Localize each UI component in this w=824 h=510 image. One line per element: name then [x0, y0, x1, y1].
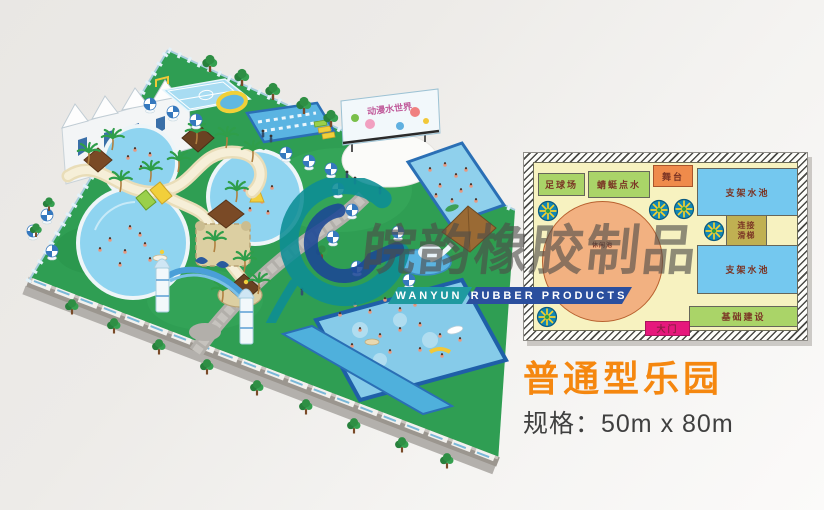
umbrella-icon: [46, 245, 58, 260]
plan-zone-label: 滑梯: [738, 231, 756, 240]
plan-zone-label: 连接: [738, 221, 756, 230]
umbrella-icon: [144, 98, 156, 113]
umbrella-icon: [167, 106, 179, 121]
plan-zone-frame-pool-top: 支架水池: [697, 168, 798, 216]
plan-tree-icon: [537, 200, 559, 222]
plan-zone-football: 足球场: [538, 173, 585, 196]
site-plan-panel: 休闲池 足球场 蜻蜓点水 舞台 支架水池 连接 滑梯 支架水池 基础建设 大门: [523, 152, 808, 341]
product-title: 普通型乐园: [523, 350, 723, 402]
plan-zone-label: 休闲池: [592, 240, 613, 249]
umbrella-icon: [392, 226, 404, 241]
tree-icon: [43, 197, 55, 211]
product-spec: 规格：50m x 80m: [523, 404, 734, 440]
plan-zone-infrastructure: 基础建设: [689, 306, 798, 327]
product-sheet: 动漫水世界: [0, 0, 824, 510]
umbrella-icon: [325, 163, 337, 178]
umbrella-icon: [41, 209, 53, 224]
plan-zone-connecting-slide: 连接 滑梯: [726, 215, 767, 246]
boat: [365, 339, 379, 345]
plan-zone-gate: 大门: [645, 321, 690, 336]
umbrella-icon: [190, 114, 202, 129]
plan-tree-icon: [648, 199, 670, 221]
plan-zone-dragonfly: 蜻蜓点水: [588, 171, 650, 198]
plan-tree-icon: [536, 306, 558, 328]
plan-tree-icon: [673, 198, 695, 220]
umbrella-icon: [332, 183, 344, 198]
umbrella-icon: [303, 155, 315, 170]
umbrella-icon: [346, 204, 358, 219]
umbrella-icon: [403, 274, 415, 289]
plan-zone-stage: 舞台: [653, 165, 693, 187]
plan-zone-frame-pool-bottom: 支架水池: [697, 245, 798, 294]
plan-tree-icon: [703, 220, 725, 242]
umbrella-icon: [327, 231, 339, 246]
umbrella-icon: [280, 147, 292, 162]
plan-zone-leisure-pool: 休闲池: [542, 201, 663, 322]
site-plan: 休闲池 足球场 蜻蜓点水 舞台 支架水池 连接 滑梯 支架水池 基础建设 大门: [533, 162, 798, 331]
park-illustration: 动漫水世界: [0, 0, 530, 510]
umbrella-icon: [351, 261, 363, 276]
